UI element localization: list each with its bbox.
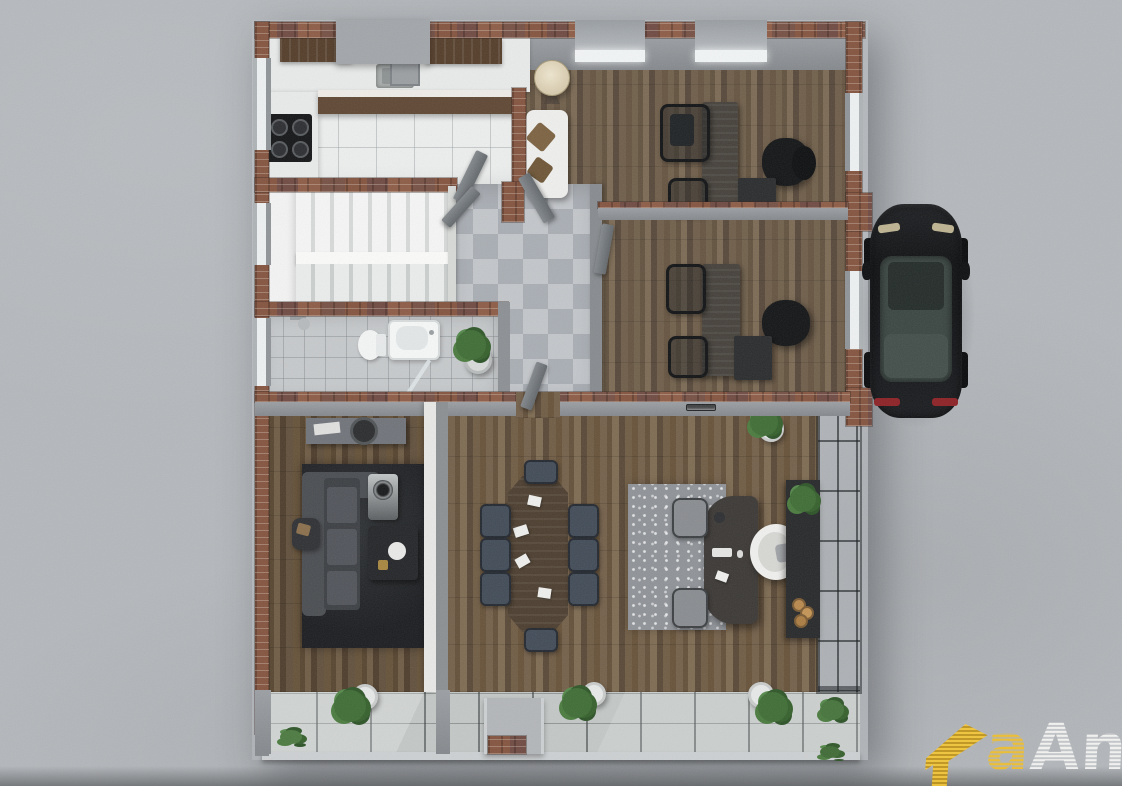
logo-text-white: Ani (1028, 711, 1122, 785)
logo-arrow-icon (924, 724, 989, 786)
logo-text: aAni (984, 716, 1122, 780)
grain-overlay (0, 0, 1122, 786)
logo-text-yellow: a (984, 711, 1032, 785)
logo-watermark: aAni (920, 698, 1122, 786)
render-canvas: aAni (0, 0, 1122, 786)
